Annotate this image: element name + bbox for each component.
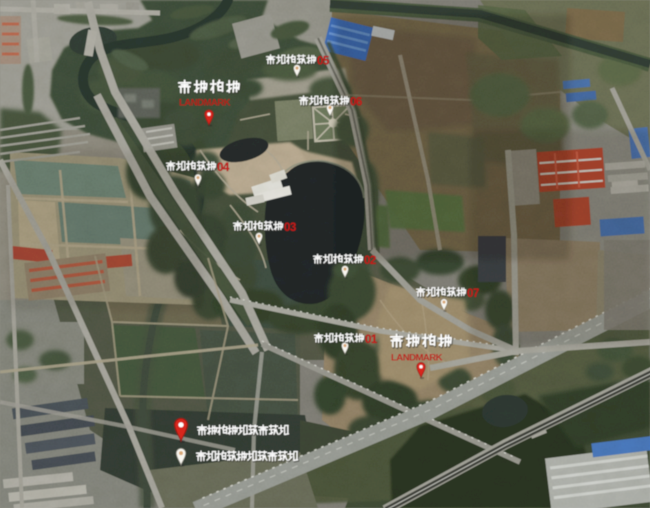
svg-text:04: 04 (217, 162, 230, 174)
svg-text:LANDMARK: LANDMARK (179, 98, 231, 109)
svg-text:03: 03 (284, 222, 296, 234)
svg-text:LANDMARK: LANDMARK (391, 353, 443, 364)
svg-text:06: 06 (350, 97, 362, 109)
svg-text:01: 01 (365, 334, 378, 346)
svg-text:05: 05 (317, 56, 330, 68)
svg-text:02: 02 (364, 255, 376, 267)
svg-text:07: 07 (467, 288, 479, 300)
